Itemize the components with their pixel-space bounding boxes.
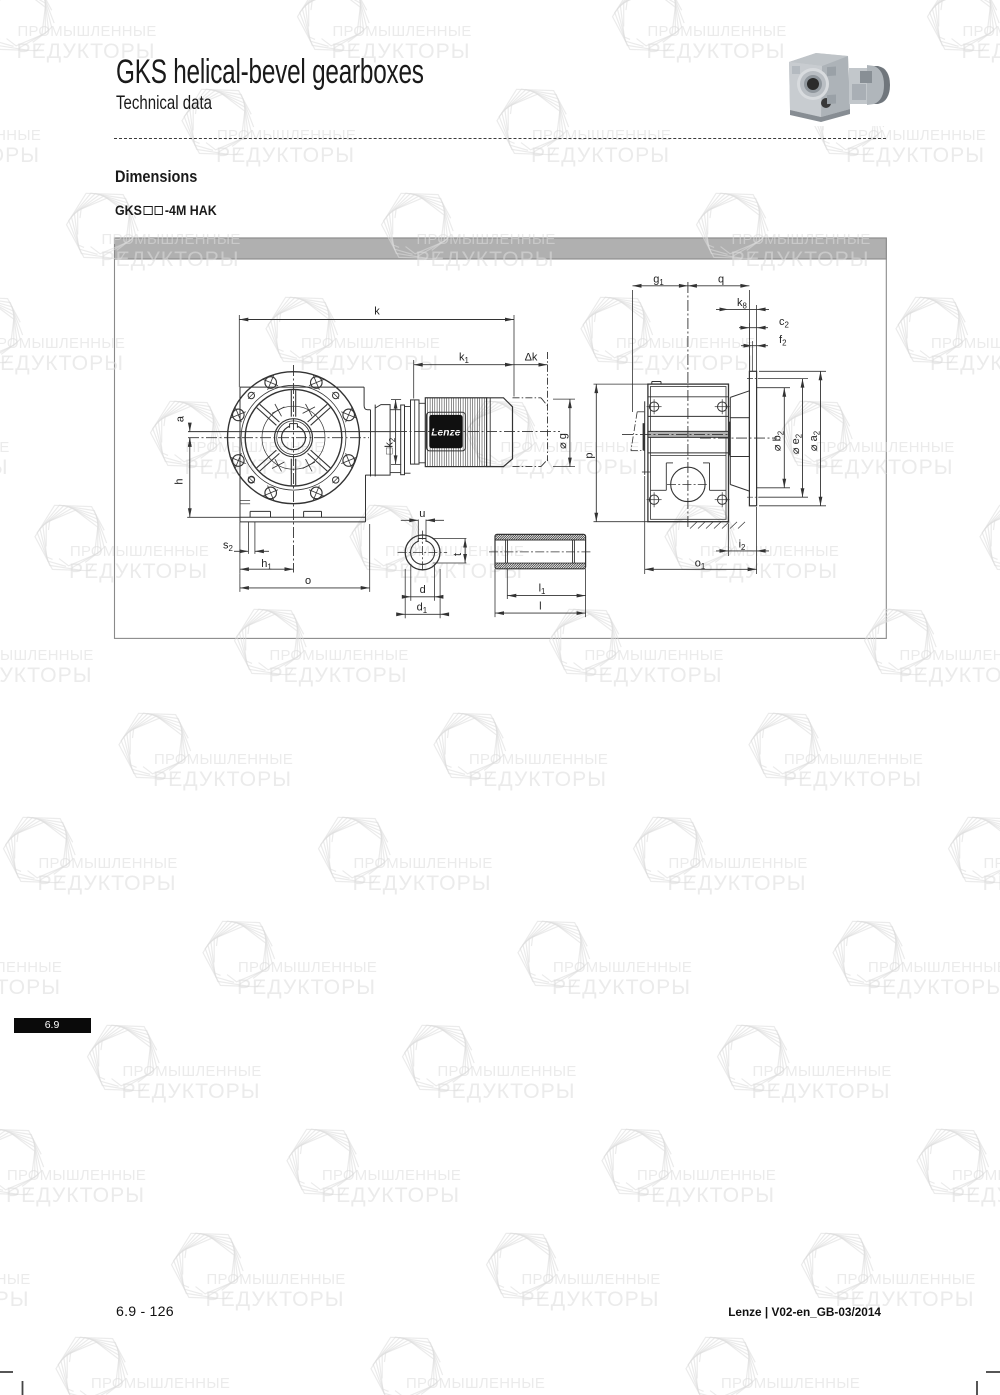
svg-text:⌀ e2: ⌀ e2 [790,434,804,454]
svg-text:t: t [452,553,464,556]
svg-text:h: h [174,479,186,485]
svg-text:Δk: Δk [525,351,538,363]
svg-text:o: o [305,575,311,587]
svg-text:k1: k1 [459,351,469,365]
svg-text:h1: h1 [261,558,272,572]
svg-text:k8: k8 [737,297,748,311]
svg-text:g1: g1 [653,274,664,288]
svg-text:o1: o1 [695,557,706,571]
svg-text:i2: i2 [739,538,746,552]
svg-text:l1: l1 [539,583,546,597]
svg-text:d1: d1 [417,601,428,615]
svg-text:u: u [419,508,425,520]
svg-text:c2: c2 [779,316,789,330]
svg-text:⌀ a2: ⌀ a2 [808,431,822,451]
svg-text:⌀ b2: ⌀ b2 [772,431,786,451]
svg-text:d: d [420,584,426,596]
svg-text:a: a [175,415,187,422]
svg-text:⌀ g: ⌀ g [557,433,569,449]
svg-text:p: p [583,452,595,458]
svg-text:□k2: □k2 [383,438,397,455]
svg-text:l: l [539,601,541,613]
svg-text:k: k [374,306,380,318]
svg-text:f2: f2 [779,334,786,348]
svg-text:Lenze: Lenze [431,427,461,438]
svg-text:q: q [718,274,724,286]
svg-text:s2: s2 [223,539,233,553]
